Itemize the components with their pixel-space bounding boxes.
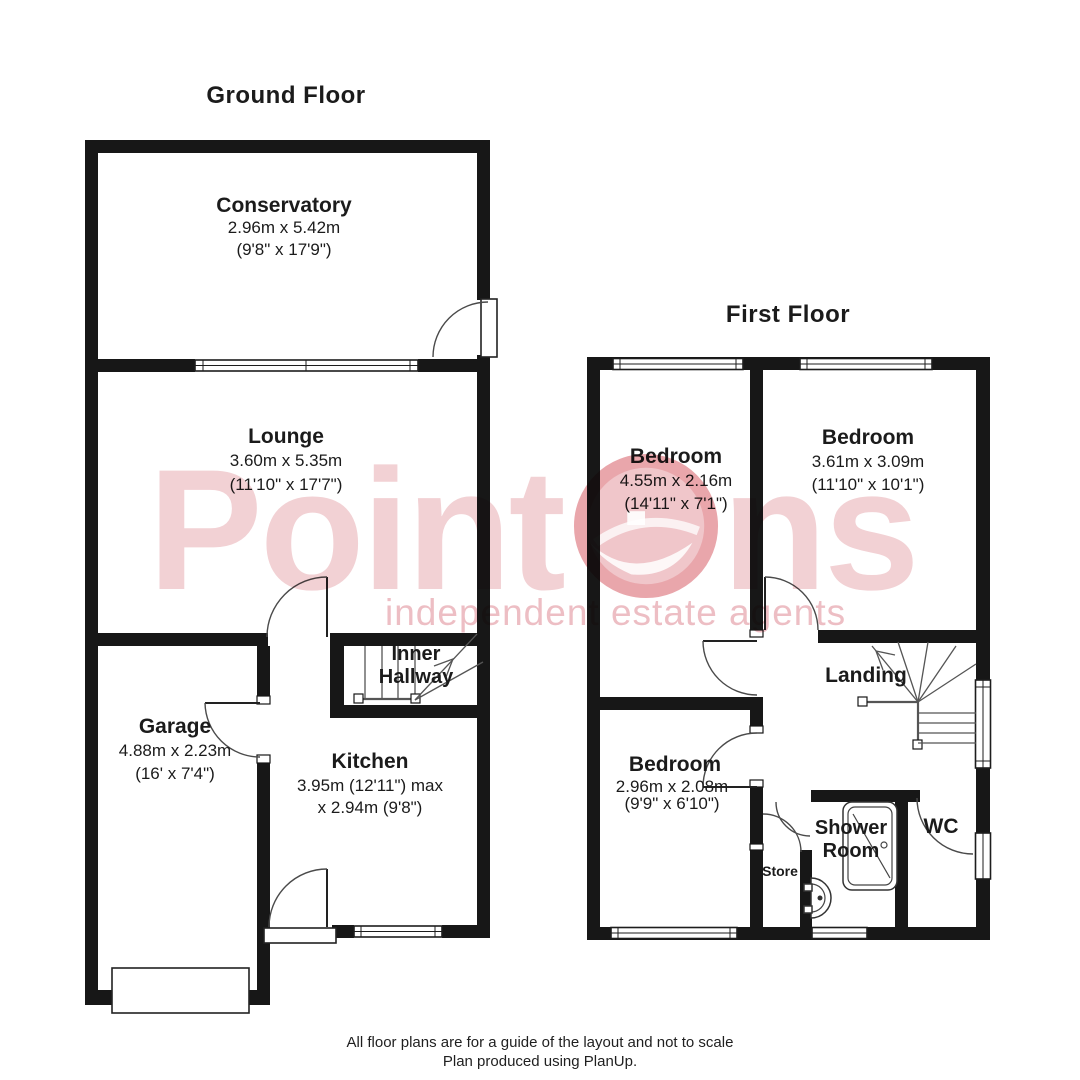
shower-room-window [812, 928, 867, 939]
conservatory-door [433, 299, 497, 357]
room-dim-imperial: (11'10" x 10'1") [812, 476, 925, 494]
room-dim-imperial: (9'8" x 17'9") [236, 241, 331, 259]
room-label-conservatory: Conservatory [216, 195, 351, 218]
room-label-kitchen: Kitchen [331, 751, 408, 774]
wc-window [976, 833, 991, 879]
room-dim-metric: 4.88m x 2.23m [119, 742, 231, 760]
room-label-wc: WC [924, 816, 959, 839]
room-label-bedroom-3: Bedroom [629, 754, 721, 777]
room-dim-imperial: (14'11" x 7'1") [624, 495, 727, 513]
room-dim-metric: 3.61m x 3.09m [812, 453, 924, 471]
kitchen-back-door [264, 869, 336, 943]
bedroom-lower-window [611, 928, 737, 939]
room-label-shower-room: Shower Room [799, 817, 903, 863]
ground-floor-title: Ground Floor [206, 83, 365, 109]
first-floor-title: First Floor [726, 302, 850, 328]
room-label-inner-hallway: Inner Hallway [368, 643, 464, 689]
room-dim-imperial: x 2.94m (9'8") [318, 799, 423, 817]
footer-credit: Plan produced using PlanUp. [443, 1054, 637, 1070]
room-dim-metric: 2.96m x 5.42m [228, 219, 340, 237]
first-floor-stairs [858, 642, 976, 749]
room-label-garage: Garage [139, 716, 211, 739]
room-dim-metric: 4.55m x 2.16m [620, 472, 732, 490]
room-dim-imperial: (9'9" x 6'10") [624, 795, 719, 813]
garage-vehicle-door [112, 968, 249, 1013]
bedroom-right-window [800, 359, 932, 370]
bedroom-left-door [703, 641, 757, 695]
room-label-lounge: Lounge [248, 426, 324, 449]
bedroom-left-window [613, 359, 743, 370]
stairs-side-window [976, 680, 991, 768]
conservatory-window [195, 360, 418, 371]
lounge-door [267, 577, 327, 637]
room-label-bedroom-2: Bedroom [822, 427, 914, 450]
room-dim-metric: 3.95m (12'11") max [297, 777, 443, 795]
room-label-bedroom-1: Bedroom [630, 446, 722, 469]
room-label-store: Store [762, 864, 798, 879]
floorplan-page: Ground Floor First Floor Conservatory 2.… [0, 0, 1080, 1080]
bedroom-right-door [765, 577, 818, 630]
kitchen-window [354, 926, 442, 937]
room-dim-metric: 3.60m x 5.35m [230, 452, 342, 470]
ground-floor-walls [85, 140, 490, 1005]
room-dim-imperial: (11'10" x 17'7") [230, 476, 343, 494]
floorplan-drawing [0, 0, 1080, 1080]
footer-disclaimer: All floor plans are for a guide of the l… [347, 1035, 734, 1051]
ground-floor-plan [85, 140, 497, 1013]
room-label-landing: Landing [825, 665, 907, 688]
room-dim-imperial: (16' x 7'4") [135, 765, 215, 783]
